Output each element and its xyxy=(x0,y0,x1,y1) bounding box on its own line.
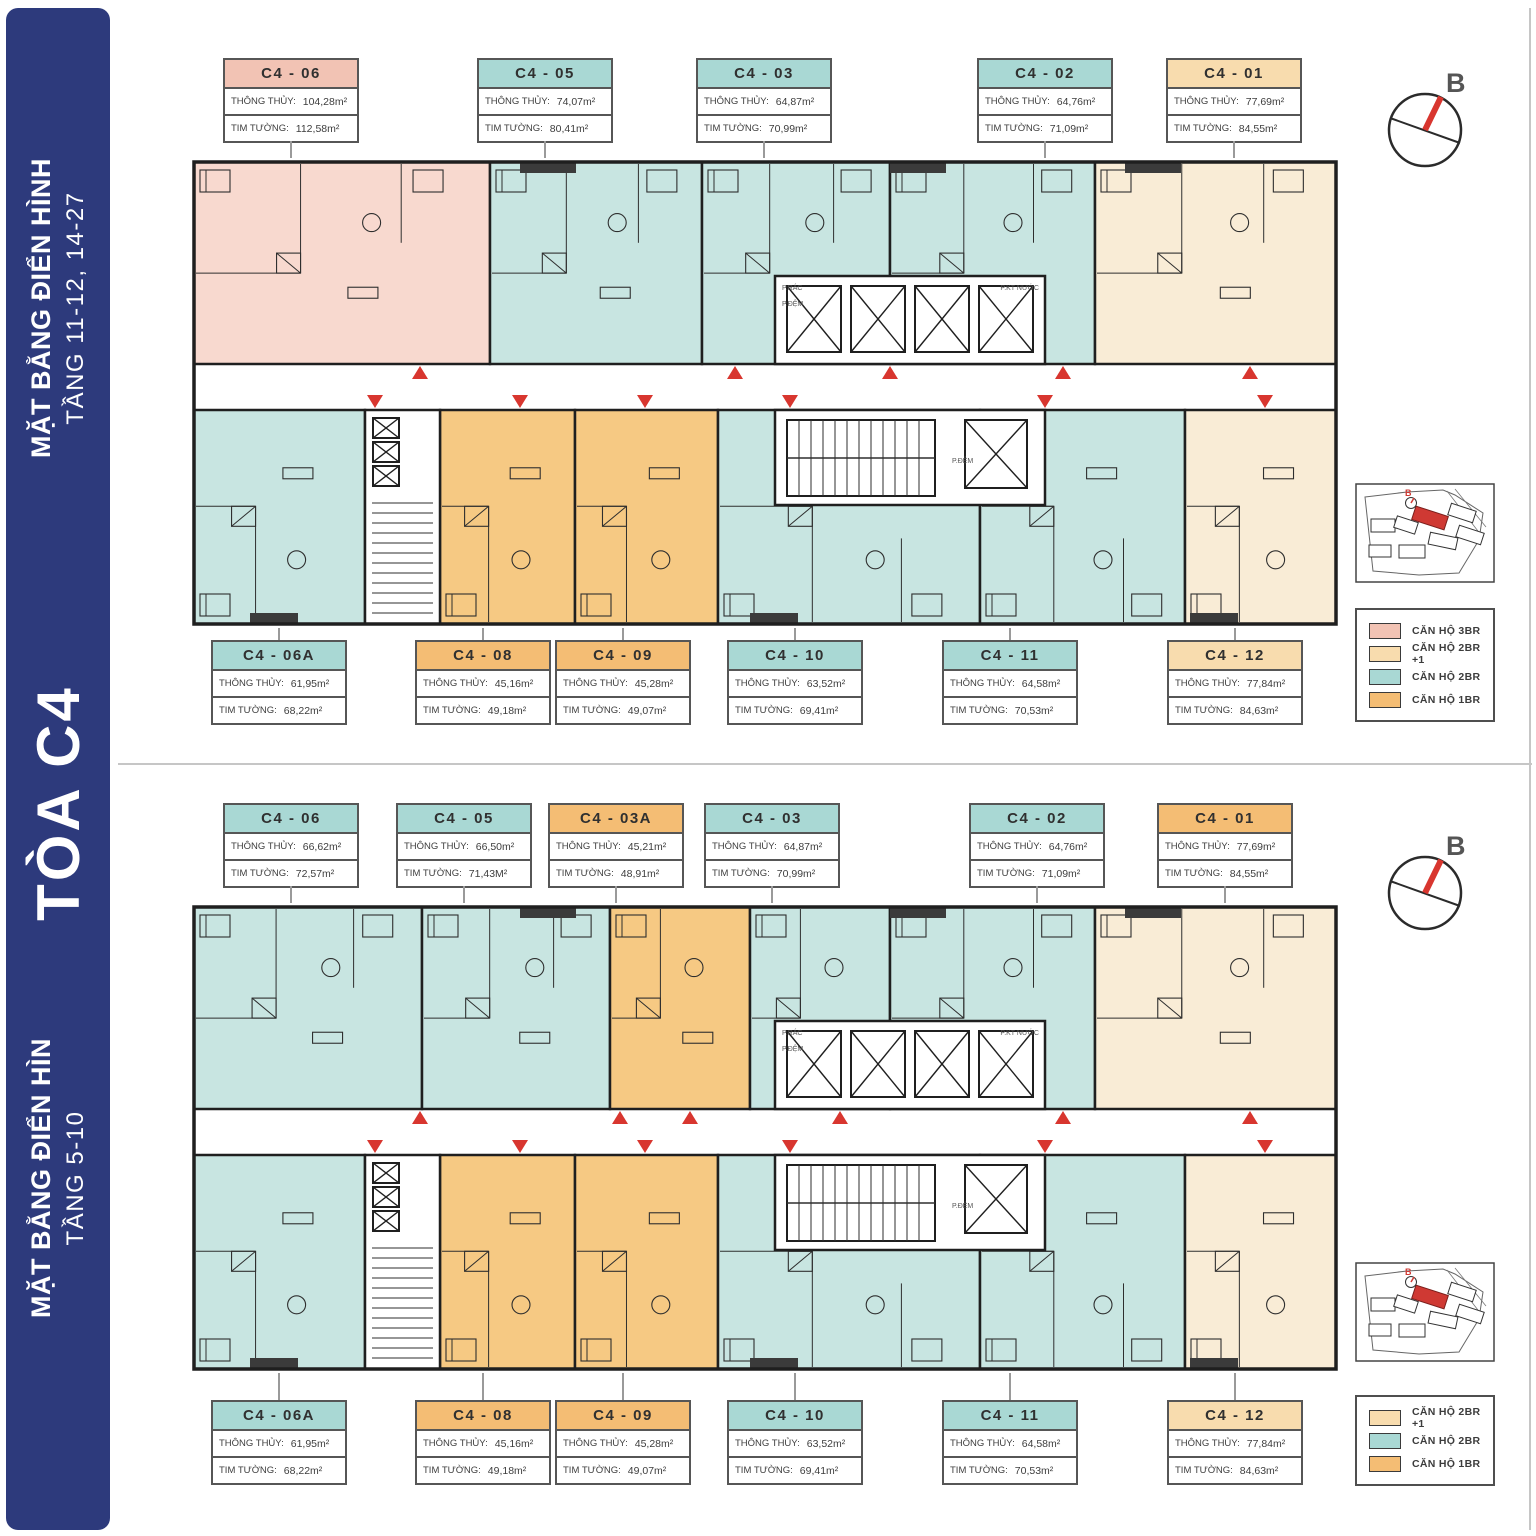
net-area-value: 61,95m² xyxy=(291,1438,330,1450)
label-leader-line xyxy=(1044,141,1046,158)
unit-net-area-row: THÔNG THỦY:64,76m² xyxy=(979,89,1111,114)
net-area-label: THÔNG THỦY: xyxy=(556,841,621,852)
net-area-label: THÔNG THỦY: xyxy=(563,678,628,689)
label-leader-line xyxy=(763,141,765,158)
label-leader-line xyxy=(278,628,280,640)
gross-area-label: TIM TƯỜNG: xyxy=(556,868,614,879)
plan-unit-C4-12 xyxy=(1185,410,1336,624)
unit-net-area-row: THÔNG THỦY:66,62m² xyxy=(225,834,357,859)
net-area-label: THÔNG THỦY: xyxy=(977,841,1042,852)
compass-letter: B xyxy=(1446,831,1466,861)
plan-unit-C4-06A xyxy=(194,1155,365,1369)
unit-label-card: C4 - 01THÔNG THỦY:77,69m²TIM TƯỜNG:84,55… xyxy=(1157,803,1293,888)
unit-label-card: C4 - 10THÔNG THỦY:63,52m²TIM TƯỜNG:69,41… xyxy=(727,1400,863,1485)
legend-label: CĂN HỘ 2BR +1 xyxy=(1412,642,1493,666)
gross-area-label: TIM TƯỜNG: xyxy=(1174,123,1232,134)
unit-label-card: C4 - 09THÔNG THỦY:45,28m²TIM TƯỜNG:49,07… xyxy=(555,640,691,725)
gross-area-value: 70,53m² xyxy=(1015,1465,1054,1477)
lower-plan-title: MẶT BẰNG ĐIỂN HÌN xyxy=(26,1038,57,1318)
plan-unit-C4-12 xyxy=(1185,1155,1336,1369)
unit-gross-area-row: TIM TƯỜNG:84,63m² xyxy=(1169,1456,1301,1483)
legend-row: CĂN HỘ 2BR xyxy=(1369,665,1493,688)
unit-net-area-row: THÔNG THỦY:61,95m² xyxy=(213,671,345,696)
gross-area-value: 49,18m² xyxy=(488,705,527,717)
unit-gross-area-row: TIM TƯỜNG:48,91m² xyxy=(550,859,682,886)
legend-row: CĂN HỘ 2BR +1 xyxy=(1369,1406,1493,1429)
net-area-value: 64,87m² xyxy=(784,841,823,853)
legend-swatch-1br xyxy=(1369,1456,1401,1472)
label-leader-line xyxy=(482,628,484,640)
gross-area-value: 71,09m² xyxy=(1050,123,1089,135)
net-area-label: THÔNG THỦY: xyxy=(704,96,769,107)
unit-label-card: C4 - 02THÔNG THỦY:64,76m²TIM TƯỜNG:71,09… xyxy=(977,58,1113,143)
net-area-value: 61,95m² xyxy=(291,678,330,690)
unit-name: C4 - 03 xyxy=(698,60,830,89)
net-area-value: 66,62m² xyxy=(303,841,342,853)
unit-net-area-row: THÔNG THỦY:77,69m² xyxy=(1159,834,1291,859)
tower-name: TÒA C4 xyxy=(24,685,93,921)
gross-area-value: 84,63m² xyxy=(1240,1465,1279,1477)
unit-net-area-row: THÔNG THỦY:45,16m² xyxy=(417,671,549,696)
gross-area-value: 49,18m² xyxy=(488,1465,527,1477)
label-leader-line xyxy=(278,1373,280,1400)
legend-label: CĂN HỘ 1BR xyxy=(1412,694,1480,706)
legend-swatch-2br1 xyxy=(1369,1410,1401,1426)
label-leader-line xyxy=(482,1373,484,1400)
lower-plan-title-block: MẶT BẰNG ĐIỂN HÌN TẦNG 5-10 xyxy=(6,963,110,1393)
upper-floor-plan-section: C4 - 06THÔNG THỦY:104,28m²TIM TƯỜNG:112,… xyxy=(115,0,1536,765)
upper-plan-title: MẶT BẰNG ĐIỂN HÌNH xyxy=(26,158,57,458)
unit-label-card: C4 - 06ATHÔNG THỦY:61,95m²TIM TƯỜNG:68,2… xyxy=(211,1400,347,1485)
unit-name: C4 - 12 xyxy=(1169,1402,1301,1431)
unit-name: C4 - 01 xyxy=(1168,60,1300,89)
unit-net-area-row: THÔNG THỦY:45,21m² xyxy=(550,834,682,859)
label-leader-line xyxy=(615,886,617,903)
gross-area-label: TIM TƯỜNG: xyxy=(950,1465,1008,1476)
upper-plan-title-block: MẶT BẰNG ĐIỂN HÌNH TẦNG 11-12, 14-27 xyxy=(6,93,110,523)
label-leader-line xyxy=(622,1373,624,1400)
unit-label-card: C4 - 06THÔNG THỦY:66,62m²TIM TƯỜNG:72,57… xyxy=(223,803,359,888)
unit-gross-area-row: TIM TƯỜNG:71,43M² xyxy=(398,859,530,886)
legend-swatch-2br1 xyxy=(1369,646,1401,662)
unit-name: C4 - 05 xyxy=(398,805,530,834)
unit-net-area-row: THÔNG THỦY:45,28m² xyxy=(557,1431,689,1456)
legend-row: CĂN HỘ 3BR xyxy=(1369,619,1493,642)
gross-area-value: 84,63m² xyxy=(1240,705,1279,717)
legend-row: CĂN HỘ 1BR xyxy=(1369,688,1493,711)
unit-name: C4 - 02 xyxy=(971,805,1103,834)
legend-label: CĂN HỘ 1BR xyxy=(1412,1458,1480,1470)
net-area-value: 77,84m² xyxy=(1247,678,1286,690)
legend-label: CĂN HỘ 3BR xyxy=(1412,625,1480,637)
core-label-buffer2: P.ĐỆM xyxy=(952,1201,973,1210)
gross-area-label: TIM TƯỜNG: xyxy=(423,705,481,716)
unit-label-card: C4 - 06THÔNG THỦY:104,28m²TIM TƯỜNG:112,… xyxy=(223,58,359,143)
net-area-label: THÔNG THỦY: xyxy=(219,678,284,689)
minimap-building xyxy=(1399,1324,1425,1337)
unit-gross-area-row: TIM TƯỜNG:84,63m² xyxy=(1169,696,1301,723)
plan-unit-C4-09 xyxy=(575,410,718,624)
net-area-value: 77,69m² xyxy=(1246,96,1285,108)
net-area-label: THÔNG THỦY: xyxy=(1175,678,1240,689)
plan-unit-C4-08 xyxy=(440,1155,575,1369)
legend-row: CĂN HỘ 2BR xyxy=(1369,1429,1493,1452)
unit-net-area-row: THÔNG THỦY:63,52m² xyxy=(729,1431,861,1456)
unit-label-card: C4 - 06ATHÔNG THỦY:61,95m²TIM TƯỜNG:68,2… xyxy=(211,640,347,725)
site-location-map: B xyxy=(1355,1262,1495,1362)
minimap-building xyxy=(1369,1324,1391,1336)
lower-floor-plan-section: C4 - 06THÔNG THỦY:66,62m²TIM TƯỜNG:72,57… xyxy=(115,768,1536,1533)
plan-unit-C4-09 xyxy=(575,1155,718,1369)
legend-swatch-2br xyxy=(1369,1433,1401,1449)
gross-area-label: TIM TƯỜNG: xyxy=(404,868,462,879)
gross-area-label: TIM TƯỜNG: xyxy=(1165,868,1223,879)
unit-net-area-row: THÔNG THỦY:74,07m² xyxy=(479,89,611,114)
unit-name: C4 - 06 xyxy=(225,805,357,834)
net-area-value: 45,28m² xyxy=(635,678,674,690)
gross-area-value: 70,99m² xyxy=(777,868,816,880)
minimap-building xyxy=(1369,545,1391,557)
unit-net-area-row: THÔNG THỦY:104,28m² xyxy=(225,89,357,114)
label-leader-line xyxy=(771,886,773,903)
floor-plan-drawing: P.RÁCP.ĐỆMP.KT NƯỚCP.ĐỆM xyxy=(190,158,1340,628)
unit-label-card: C4 - 03ATHÔNG THỦY:45,21m²TIM TƯỜNG:48,9… xyxy=(548,803,684,888)
net-area-label: THÔNG THỦY: xyxy=(735,1438,800,1449)
unit-net-area-row: THÔNG THỦY:45,28m² xyxy=(557,671,689,696)
site-location-map: B xyxy=(1355,483,1495,583)
gross-area-value: 71,43M² xyxy=(469,868,508,880)
net-area-value: 64,76m² xyxy=(1057,96,1096,108)
compass-letter: B xyxy=(1446,68,1466,98)
unit-name: C4 - 06A xyxy=(213,642,345,671)
gross-area-value: 112,58m² xyxy=(296,123,340,135)
unit-gross-area-row: TIM TƯỜNG:70,99m² xyxy=(698,114,830,141)
net-area-label: THÔNG THỦY: xyxy=(231,841,296,852)
net-area-value: 64,58m² xyxy=(1022,678,1061,690)
unit-gross-area-row: TIM TƯỜNG:49,18m² xyxy=(417,696,549,723)
unit-name: C4 - 10 xyxy=(729,642,861,671)
gross-area-label: TIM TƯỜNG: xyxy=(950,705,1008,716)
unit-net-area-row: THÔNG THỦY:64,87m² xyxy=(706,834,838,859)
unit-gross-area-row: TIM TƯỜNG:71,09m² xyxy=(979,114,1111,141)
net-area-label: THÔNG THỦY: xyxy=(712,841,777,852)
label-leader-line xyxy=(1224,886,1226,903)
unit-net-area-row: THÔNG THỦY:64,87m² xyxy=(698,89,830,114)
net-area-value: 63,52m² xyxy=(807,1438,846,1450)
legend: CĂN HỘ 3BRCĂN HỘ 2BR +1CĂN HỘ 2BRCĂN HỘ … xyxy=(1355,608,1495,722)
label-leader-line xyxy=(1036,886,1038,903)
gross-area-label: TIM TƯỜNG: xyxy=(563,705,621,716)
net-area-value: 64,87m² xyxy=(776,96,815,108)
unit-gross-area-row: TIM TƯỜNG:84,55m² xyxy=(1168,114,1300,141)
plan-unit-C4-08 xyxy=(440,410,575,624)
unit-gross-area-row: TIM TƯỜNG:49,07m² xyxy=(557,1456,689,1483)
unit-name: C4 - 06A xyxy=(213,1402,345,1431)
unit-gross-area-row: TIM TƯỜNG:69,41m² xyxy=(729,1456,861,1483)
legend-swatch-2br xyxy=(1369,669,1401,685)
gross-area-value: 69,41m² xyxy=(800,1465,839,1477)
unit-gross-area-row: TIM TƯỜNG:70,99m² xyxy=(706,859,838,886)
unit-name: C4 - 06 xyxy=(225,60,357,89)
label-leader-line xyxy=(622,628,624,640)
unit-gross-area-row: TIM TƯỜNG:112,58m² xyxy=(225,114,357,141)
label-leader-line xyxy=(794,1373,796,1400)
unit-gross-area-row: TIM TƯỜNG:49,07m² xyxy=(557,696,689,723)
unit-gross-area-row: TIM TƯỜNG:68,22m² xyxy=(213,696,345,723)
label-leader-line xyxy=(463,886,465,903)
core-label-buffer: P.ĐỆM xyxy=(782,1044,803,1053)
minimap-compass-letter: B xyxy=(1405,488,1412,498)
label-leader-line xyxy=(794,628,796,640)
tower-name-block: TÒA C4 xyxy=(6,623,110,983)
unit-gross-area-row: TIM TƯỜNG:84,55m² xyxy=(1159,859,1291,886)
unit-net-area-row: THÔNG THỦY:63,52m² xyxy=(729,671,861,696)
label-leader-line xyxy=(1009,1373,1011,1400)
gross-area-label: TIM TƯỜNG: xyxy=(423,1465,481,1476)
minimap-compass-letter: B xyxy=(1405,1267,1412,1277)
unit-name: C4 - 12 xyxy=(1169,642,1301,671)
unit-name: C4 - 11 xyxy=(944,1402,1076,1431)
gross-area-label: TIM TƯỜNG: xyxy=(563,1465,621,1476)
floor-plan-drawing: P.RÁCP.ĐỆMP.KT NƯỚCP.ĐỆM xyxy=(190,903,1340,1373)
minimap-building xyxy=(1399,545,1425,558)
net-area-label: THÔNG THỦY: xyxy=(563,1438,628,1449)
net-area-label: THÔNG THỦY: xyxy=(950,1438,1015,1449)
net-area-label: THÔNG THỦY: xyxy=(1165,841,1230,852)
unit-label-card: C4 - 12THÔNG THỦY:77,84m²TIM TƯỜNG:84,63… xyxy=(1167,640,1303,725)
unit-gross-area-row: TIM TƯỜNG:71,09m² xyxy=(971,859,1103,886)
gross-area-value: 84,55m² xyxy=(1230,868,1269,880)
label-leader-line xyxy=(1234,628,1236,640)
gross-area-label: TIM TƯỜNG: xyxy=(1175,1465,1233,1476)
unit-name: C4 - 03A xyxy=(550,805,682,834)
gross-area-value: 49,07m² xyxy=(628,1465,667,1477)
net-area-label: THÔNG THỦY: xyxy=(423,1438,488,1449)
unit-label-card: C4 - 02THÔNG THỦY:64,76m²TIM TƯỜNG:71,09… xyxy=(969,803,1105,888)
legend-swatch-3br xyxy=(1369,623,1401,639)
core-label-buffer: P.ĐỆM xyxy=(782,299,803,308)
gross-area-label: TIM TƯỜNG: xyxy=(1175,705,1233,716)
unit-gross-area-row: TIM TƯỜNG:69,41m² xyxy=(729,696,861,723)
net-area-label: THÔNG THỦY: xyxy=(404,841,469,852)
sidebar: MẶT BẰNG ĐIỂN HÌNH TẦNG 11-12, 14-27 TÒA… xyxy=(6,8,110,1530)
unit-name: C4 - 08 xyxy=(417,642,549,671)
unit-name: C4 - 09 xyxy=(557,1402,689,1431)
core-label-trash: P.RÁC xyxy=(782,1028,803,1037)
net-area-label: THÔNG THỦY: xyxy=(485,96,550,107)
net-area-value: 74,07m² xyxy=(557,96,596,108)
unit-gross-area-row: TIM TƯỜNG:72,57m² xyxy=(225,859,357,886)
net-area-value: 45,21m² xyxy=(628,841,667,853)
compass-needle xyxy=(1425,97,1441,130)
net-area-value: 45,16m² xyxy=(495,678,534,690)
core-label-water: P.KT NƯỚC xyxy=(1000,1028,1039,1037)
unit-net-area-row: THÔNG THỦY:45,16m² xyxy=(417,1431,549,1456)
gross-area-label: TIM TƯỜNG: xyxy=(219,1465,277,1476)
legend-row: CĂN HỘ 2BR +1 xyxy=(1369,642,1493,665)
unit-net-area-row: THÔNG THỦY:61,95m² xyxy=(213,1431,345,1456)
unit-label-card: C4 - 01THÔNG THỦY:77,69m²TIM TƯỜNG:84,55… xyxy=(1166,58,1302,143)
label-leader-line xyxy=(290,886,292,903)
unit-net-area-row: THÔNG THỦY:64,58m² xyxy=(944,671,1076,696)
legend-swatch-1br xyxy=(1369,692,1401,708)
minimap-building xyxy=(1371,519,1395,532)
label-leader-line xyxy=(1233,141,1235,158)
gross-area-label: TIM TƯỜNG: xyxy=(704,123,762,134)
legend: CĂN HỘ 2BR +1CĂN HỘ 2BRCĂN HỘ 1BR xyxy=(1355,1395,1495,1486)
gross-area-value: 49,07m² xyxy=(628,705,667,717)
net-area-value: 64,58m² xyxy=(1022,1438,1061,1450)
gross-area-value: 72,57m² xyxy=(296,868,335,880)
lower-plan-floors: TẦNG 5-10 xyxy=(62,1111,90,1246)
unit-gross-area-row: TIM TƯỜNG:80,41m² xyxy=(479,114,611,141)
net-area-label: THÔNG THỦY: xyxy=(423,678,488,689)
unit-name: C4 - 08 xyxy=(417,1402,549,1431)
net-area-label: THÔNG THỦY: xyxy=(219,1438,284,1449)
gross-area-value: 68,22m² xyxy=(284,1465,323,1477)
page: MẶT BẰNG ĐIỂN HÌNH TẦNG 11-12, 14-27 TÒA… xyxy=(0,0,1536,1536)
core-label-water: P.KT NƯỚC xyxy=(1000,283,1039,292)
net-area-value: 77,69m² xyxy=(1237,841,1276,853)
unit-name: C4 - 09 xyxy=(557,642,689,671)
unit-gross-area-row: TIM TƯỜNG:70,53m² xyxy=(944,1456,1076,1483)
net-area-label: THÔNG THỦY: xyxy=(1175,1438,1240,1449)
gross-area-value: 80,41m² xyxy=(550,123,589,135)
label-leader-line xyxy=(1009,628,1011,640)
legend-label: CĂN HỘ 2BR xyxy=(1412,671,1480,683)
compass: B xyxy=(1380,823,1480,938)
unit-net-area-row: THÔNG THỦY:64,58m² xyxy=(944,1431,1076,1456)
unit-label-card: C4 - 12THÔNG THỦY:77,84m²TIM TƯỜNG:84,63… xyxy=(1167,1400,1303,1485)
unit-label-card: C4 - 08THÔNG THỦY:45,16m²TIM TƯỜNG:49,18… xyxy=(415,1400,551,1485)
net-area-value: 66,50m² xyxy=(476,841,515,853)
gross-area-label: TIM TƯỜNG: xyxy=(712,868,770,879)
minimap-building xyxy=(1371,1298,1395,1311)
legend-label: CĂN HỘ 2BR +1 xyxy=(1412,1406,1493,1430)
net-area-value: 45,16m² xyxy=(495,1438,534,1450)
unit-net-area-row: THÔNG THỦY:77,69m² xyxy=(1168,89,1300,114)
unit-label-card: C4 - 05THÔNG THỦY:74,07m²TIM TƯỜNG:80,41… xyxy=(477,58,613,143)
unit-label-card: C4 - 08THÔNG THỦY:45,16m²TIM TƯỜNG:49,18… xyxy=(415,640,551,725)
unit-label-card: C4 - 09THÔNG THỦY:45,28m²TIM TƯỜNG:49,07… xyxy=(555,1400,691,1485)
gross-area-value: 48,91m² xyxy=(621,868,660,880)
net-area-value: 104,28m² xyxy=(303,96,347,108)
net-area-value: 45,28m² xyxy=(635,1438,674,1450)
label-leader-line xyxy=(544,141,546,158)
gross-area-value: 84,55m² xyxy=(1239,123,1278,135)
unit-net-area-row: THÔNG THỦY:64,76m² xyxy=(971,834,1103,859)
net-area-label: THÔNG THỦY: xyxy=(950,678,1015,689)
unit-net-area-row: THÔNG THỦY:77,84m² xyxy=(1169,1431,1301,1456)
unit-name: C4 - 03 xyxy=(706,805,838,834)
gross-area-value: 70,99m² xyxy=(769,123,808,135)
net-area-value: 64,76m² xyxy=(1049,841,1088,853)
unit-name: C4 - 10 xyxy=(729,1402,861,1431)
unit-net-area-row: THÔNG THỦY:66,50m² xyxy=(398,834,530,859)
unit-name: C4 - 05 xyxy=(479,60,611,89)
net-area-value: 77,84m² xyxy=(1247,1438,1286,1450)
gross-area-label: TIM TƯỜNG: xyxy=(735,1465,793,1476)
unit-label-card: C4 - 10THÔNG THỦY:63,52m²TIM TƯỜNG:69,41… xyxy=(727,640,863,725)
unit-label-card: C4 - 03THÔNG THỦY:64,87m²TIM TƯỜNG:70,99… xyxy=(704,803,840,888)
legend-label: CĂN HỘ 2BR xyxy=(1412,1435,1480,1447)
unit-label-card: C4 - 11THÔNG THỦY:64,58m²TIM TƯỜNG:70,53… xyxy=(942,640,1078,725)
net-area-label: THÔNG THỦY: xyxy=(735,678,800,689)
gross-area-value: 71,09m² xyxy=(1042,868,1081,880)
plan-unit-C4-06 xyxy=(194,162,490,364)
upper-plan-floors: TẦNG 11-12, 14-27 xyxy=(62,191,90,424)
gross-area-label: TIM TƯỜNG: xyxy=(231,868,289,879)
unit-label-card: C4 - 11THÔNG THỦY:64,58m²TIM TƯỜNG:70,53… xyxy=(942,1400,1078,1485)
net-area-value: 63,52m² xyxy=(807,678,846,690)
unit-net-area-row: THÔNG THỦY:77,84m² xyxy=(1169,671,1301,696)
gross-area-value: 68,22m² xyxy=(284,705,323,717)
core-label-trash: P.RÁC xyxy=(782,283,803,292)
unit-label-card: C4 - 05THÔNG THỦY:66,50m²TIM TƯỜNG:71,43… xyxy=(396,803,532,888)
unit-name: C4 - 01 xyxy=(1159,805,1291,834)
label-leader-line xyxy=(1234,1373,1236,1400)
unit-name: C4 - 11 xyxy=(944,642,1076,671)
legend-row: CĂN HỘ 1BR xyxy=(1369,1452,1493,1475)
unit-gross-area-row: TIM TƯỜNG:70,53m² xyxy=(944,696,1076,723)
core-label-buffer2: P.ĐỆM xyxy=(952,456,973,465)
compass: B xyxy=(1380,60,1480,175)
unit-gross-area-row: TIM TƯỜNG:49,18m² xyxy=(417,1456,549,1483)
gross-area-value: 70,53m² xyxy=(1015,705,1054,717)
unit-label-card: C4 - 03THÔNG THỦY:64,87m²TIM TƯỜNG:70,99… xyxy=(696,58,832,143)
gross-area-value: 69,41m² xyxy=(800,705,839,717)
gross-area-label: TIM TƯỜNG: xyxy=(985,123,1043,134)
net-area-label: THÔNG THỦY: xyxy=(985,96,1050,107)
plan-unit-C4-06A xyxy=(194,410,365,624)
gross-area-label: TIM TƯỜNG: xyxy=(219,705,277,716)
gross-area-label: TIM TƯỜNG: xyxy=(485,123,543,134)
net-area-label: THÔNG THỦY: xyxy=(231,96,296,107)
label-leader-line xyxy=(290,141,292,158)
compass-needle xyxy=(1425,860,1441,893)
net-area-label: THÔNG THỦY: xyxy=(1174,96,1239,107)
gross-area-label: TIM TƯỜNG: xyxy=(735,705,793,716)
gross-area-label: TIM TƯỜNG: xyxy=(977,868,1035,879)
gross-area-label: TIM TƯỜNG: xyxy=(231,123,289,134)
unit-gross-area-row: TIM TƯỜNG:68,22m² xyxy=(213,1456,345,1483)
unit-name: C4 - 02 xyxy=(979,60,1111,89)
